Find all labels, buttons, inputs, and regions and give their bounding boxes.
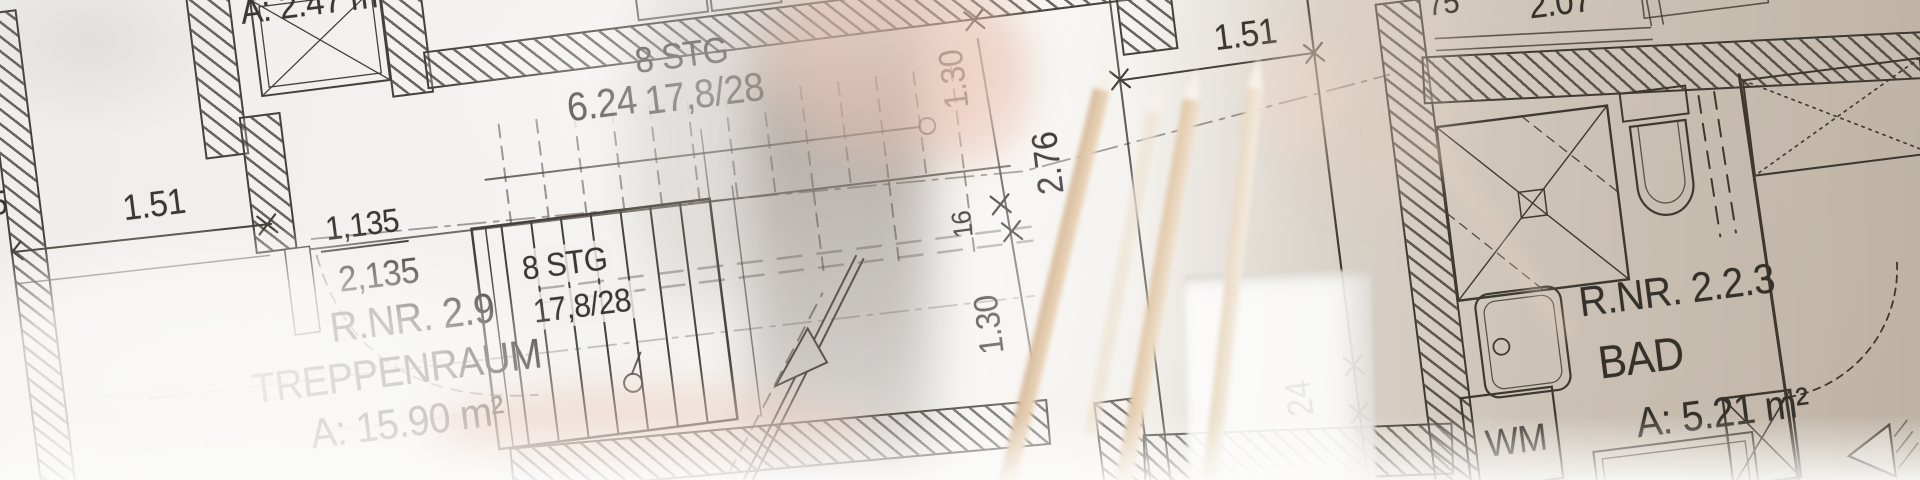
bathtub-box (1743, 58, 1920, 176)
shower (1436, 106, 1629, 301)
blueprint-photo-banner: A: 2.47 m² 1.51 5 1,135 2,135 R.NR. 2.9 … (0, 0, 1920, 480)
washing-machine-label: WM (1483, 416, 1549, 466)
dim-bath-clear-width: 1.51 (1212, 10, 1279, 60)
bath-room-name: BAD (1595, 325, 1687, 389)
door-swing-arc (1770, 262, 1912, 397)
toilet (1620, 86, 1701, 219)
door-leaf (285, 246, 321, 334)
dim-niche-width: 24 (1276, 378, 1322, 419)
sink (1474, 285, 1572, 399)
dim-flight-width-top: 1.30 (932, 47, 978, 110)
floor-plan: A: 2.47 m² 1.51 5 1,135 2,135 R.NR. 2.9 … (0, 0, 1920, 480)
entrance-arrow (1845, 419, 1920, 480)
dim-flight-width-bottom: 1.30 (967, 293, 1013, 356)
dim-wall-gap: 16 (946, 209, 980, 239)
dim-bath-depth: 2.76 (1023, 129, 1073, 196)
dim-partial-top: 75 (1425, 0, 1461, 24)
dim-left-width: 1.51 (120, 180, 187, 230)
